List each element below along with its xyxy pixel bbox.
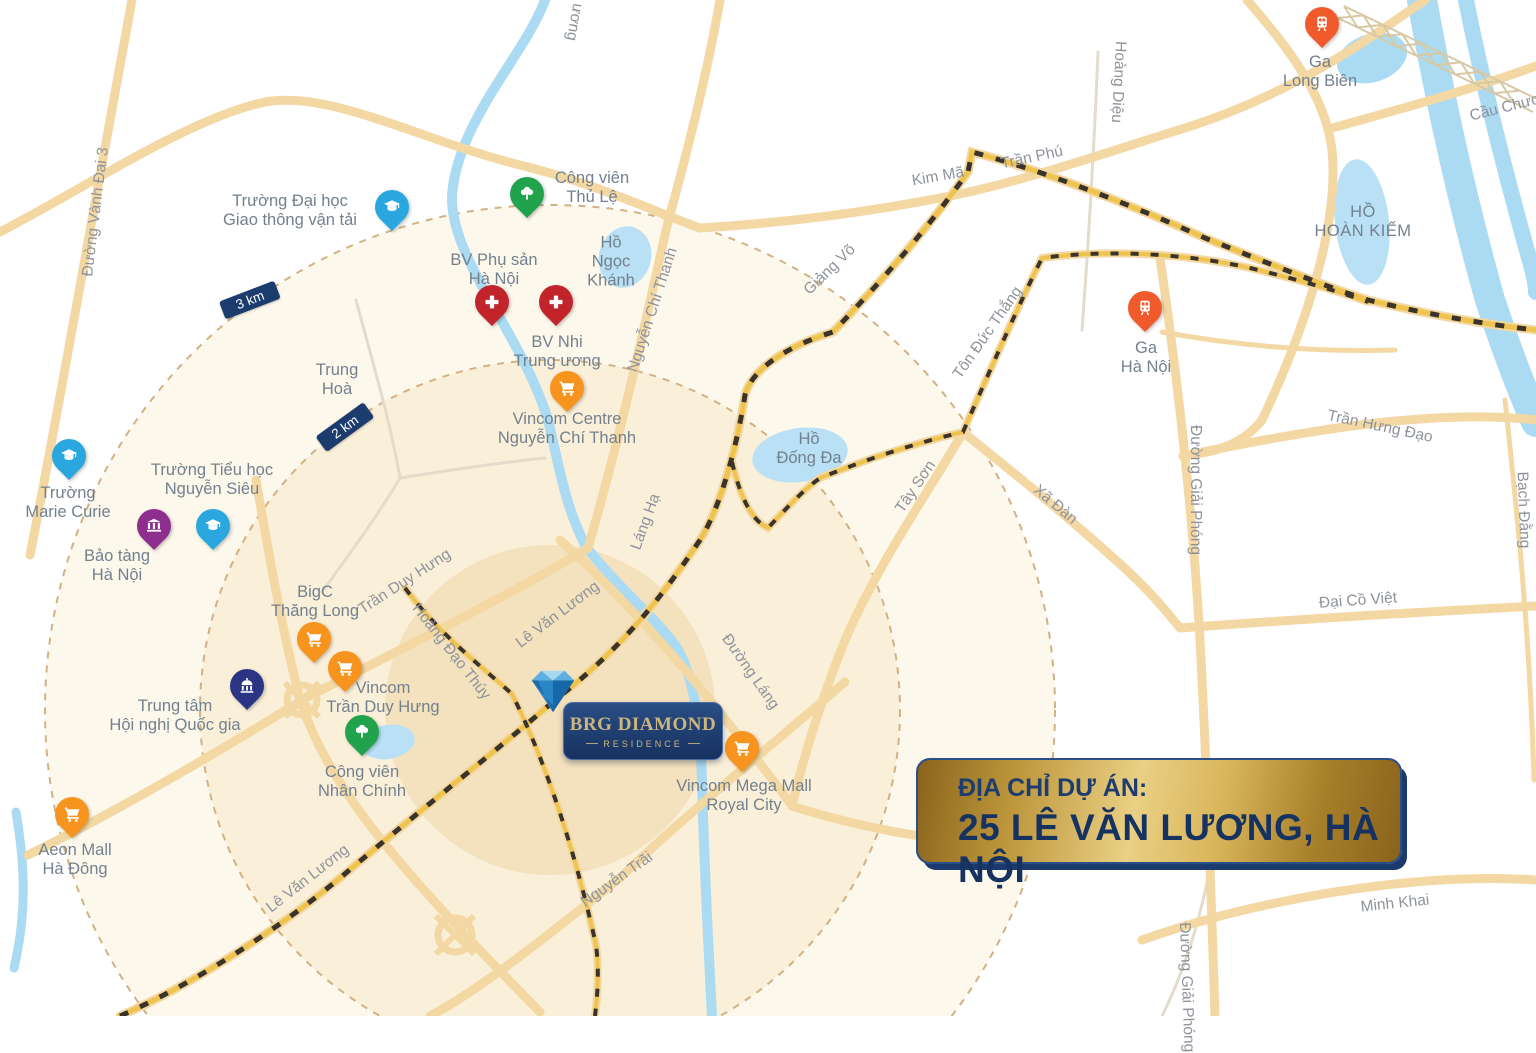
- project-address-banner: ĐỊA CHỈ DỰ ÁN: 25 LÊ VĂN LƯƠNG, HÀ NỘI: [916, 758, 1402, 864]
- shopping-cart-icon: [725, 731, 759, 765]
- banner-label: ĐỊA CHỈ DỰ ÁN:: [958, 774, 1400, 803]
- graduation-cap-icon: [196, 509, 230, 543]
- pin-vincom-nct: [543, 364, 591, 412]
- area-label-trung-hoa: TrungHoà: [316, 361, 359, 399]
- train-icon: [1305, 7, 1339, 41]
- poi-label-aeon: Aeon MallHà Đông: [38, 841, 111, 879]
- pin-nguyen-sieu: [189, 502, 237, 550]
- decorative-bar: [688, 743, 700, 744]
- poi-label-bv-phu-san: BV Phụ sảnHà Nội: [450, 251, 537, 289]
- poi-label-nhan-chinh: Công viênNhân Chính: [318, 763, 406, 801]
- shopping-cart-icon: [550, 371, 584, 405]
- pin-cv-thu-le: [503, 170, 551, 218]
- poi-label-ga-long-bien: GaLong Biên: [1283, 53, 1357, 91]
- project-logo-subtitle: RESIDENCE: [586, 739, 700, 749]
- tree-icon: [510, 177, 544, 211]
- shopping-cart-icon: [297, 622, 331, 656]
- road-xa-dan-dai-co-viet: [963, 432, 1536, 628]
- poi-label-hoi-nghi: Trung tâmHội nghị Quốc gia: [109, 697, 240, 735]
- poi-label-bigc: BigCThăng Long: [271, 583, 359, 621]
- medical-cross-icon: [539, 285, 573, 319]
- poi-label-nguyen-sieu: Trường Tiểu họcNguyễn Siêu: [151, 461, 273, 499]
- poi-label-royal-city: Vincom Mega MallRoyal City: [676, 777, 811, 815]
- lake-label-hoan-kiem: HỒHOÀN KIẾM: [1314, 203, 1411, 241]
- pin-bv-nhi: [532, 278, 580, 326]
- train-icon: [1128, 291, 1162, 325]
- lake-label-dong-da: HồĐống Đa: [776, 430, 841, 468]
- graduation-cap-icon: [52, 439, 86, 473]
- decorative-bar: [586, 743, 598, 744]
- pin-ga-long-bien: [1298, 0, 1346, 48]
- pin-marie-curie: [45, 432, 93, 480]
- poi-label-cv-thu-le: Công viênThủ Lệ: [555, 169, 629, 207]
- banner-address: 25 LÊ VĂN LƯƠNG, HÀ NỘI: [958, 807, 1400, 891]
- museum-icon: [137, 509, 171, 543]
- road-label-giai-phong: Đường Giải Phóng: [1186, 425, 1204, 555]
- pin-aeon: [48, 790, 96, 838]
- poi-label-marie-curie: TrườngMarie Curie: [25, 484, 110, 522]
- pin-ga-ha-noi: [1121, 284, 1169, 332]
- river-red: [1422, 0, 1536, 422]
- project-logo-title: BRG DIAMOND: [570, 714, 716, 736]
- poi-label-bv-nhi: BV NhiTrung ương: [513, 333, 600, 371]
- road-label-bach-dang: Bạch Đằng: [1513, 471, 1534, 548]
- location-map: Đường Vành Đai 3 ương Kim Mã Trần Phú Ho…: [0, 0, 1536, 1016]
- tree-icon: [345, 715, 379, 749]
- pin-bao-tang: [130, 502, 178, 550]
- medical-cross-icon: [475, 285, 509, 319]
- poi-label-bao-tang: Bảo tàngHà Nội: [84, 547, 150, 585]
- graduation-cap-icon: [375, 190, 409, 224]
- poi-label-vincom-tdh: VincomTrần Duy Hưng: [326, 679, 439, 717]
- poi-label-dh-gtvt: Trường Đại họcGiao thông vận tải: [223, 192, 357, 230]
- project-logo: BRG DIAMOND RESIDENCE: [563, 702, 723, 760]
- pin-royal-city: [718, 724, 766, 772]
- poi-label-ga-ha-noi: GaHà Nội: [1121, 339, 1171, 377]
- lake-label-ngoc-khanh: HồNgọcKhánh: [587, 234, 635, 291]
- shopping-cart-icon: [55, 797, 89, 831]
- poi-label-vincom-nct: Vincom CentreNguyễn Chí Thanh: [498, 410, 636, 448]
- road-bach-dang: [1505, 400, 1534, 780]
- pin-dh-gtvt: [368, 183, 416, 231]
